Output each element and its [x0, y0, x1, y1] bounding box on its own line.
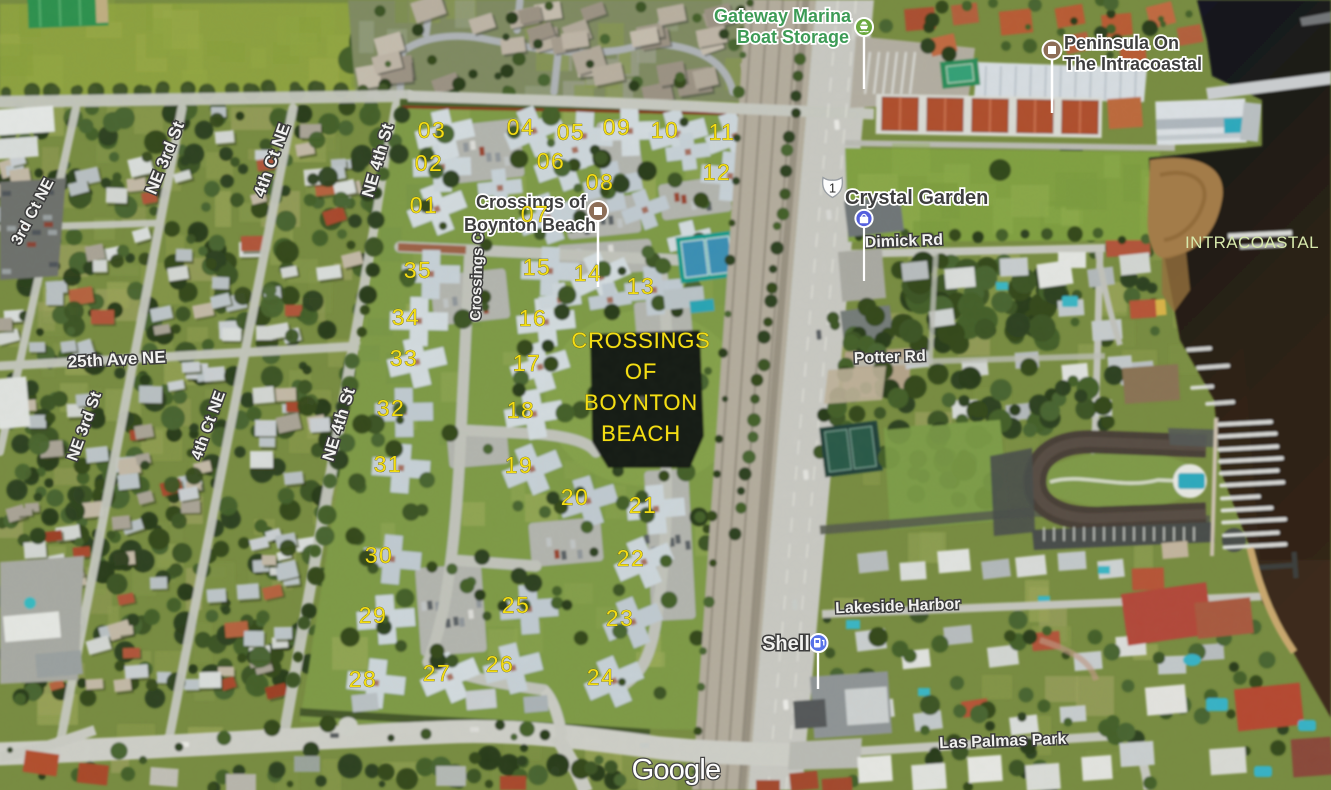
- svg-text:27: 27: [423, 660, 452, 686]
- svg-text:05: 05: [557, 119, 586, 145]
- svg-text:BEACH: BEACH: [601, 421, 681, 446]
- svg-text:03: 03: [418, 117, 447, 143]
- svg-text:08: 08: [586, 169, 615, 195]
- svg-text:23: 23: [606, 605, 635, 631]
- svg-text:Gateway Marina: Gateway Marina: [714, 6, 852, 26]
- svg-text:14: 14: [574, 260, 603, 286]
- svg-text:28: 28: [349, 666, 378, 692]
- svg-text:11: 11: [709, 119, 736, 145]
- svg-text:13: 13: [627, 273, 656, 299]
- svg-text:07: 07: [521, 201, 550, 227]
- svg-text:The Intracoastal: The Intracoastal: [1064, 54, 1202, 74]
- svg-text:INTRACOASTAL: INTRACOASTAL: [1185, 233, 1319, 252]
- svg-text:19: 19: [505, 452, 534, 478]
- svg-text:10: 10: [651, 117, 680, 143]
- svg-text:06: 06: [537, 148, 566, 174]
- svg-text:24: 24: [587, 664, 616, 690]
- svg-text:20: 20: [561, 484, 590, 510]
- svg-text:16: 16: [519, 305, 548, 331]
- svg-text:33: 33: [390, 345, 419, 371]
- svg-text:17: 17: [513, 350, 542, 376]
- svg-text:1: 1: [829, 181, 836, 196]
- svg-text:Potter Rd: Potter Rd: [854, 348, 927, 368]
- svg-text:21: 21: [629, 492, 658, 518]
- svg-text:25: 25: [502, 592, 531, 618]
- svg-text:Crystal Garden: Crystal Garden: [845, 187, 988, 209]
- svg-text:Boat Storage: Boat Storage: [737, 27, 849, 47]
- svg-text:26: 26: [486, 651, 515, 677]
- svg-text:BOYNTON: BOYNTON: [584, 390, 698, 415]
- svg-text:OF: OF: [625, 359, 657, 384]
- svg-text:18: 18: [507, 397, 536, 423]
- svg-text:Crossings Cir: Crossings Cir: [467, 222, 487, 321]
- svg-text:Peninsula On: Peninsula On: [1064, 33, 1179, 53]
- svg-text:01: 01: [410, 192, 439, 218]
- svg-text:31: 31: [374, 451, 403, 477]
- svg-text:29: 29: [359, 602, 388, 628]
- svg-text:CROSSINGS: CROSSINGS: [571, 328, 710, 353]
- svg-text:15: 15: [523, 254, 552, 280]
- svg-text:Shell: Shell: [762, 633, 810, 655]
- svg-text:34: 34: [392, 304, 421, 330]
- svg-text:22: 22: [617, 545, 646, 571]
- svg-text:04: 04: [507, 114, 536, 140]
- svg-text:Google: Google: [632, 754, 721, 786]
- svg-text:32: 32: [377, 395, 406, 421]
- svg-text:02: 02: [415, 150, 444, 176]
- svg-text:Dimick Rd: Dimick Rd: [864, 232, 943, 252]
- svg-text:30: 30: [365, 542, 394, 568]
- svg-text:35: 35: [404, 257, 433, 283]
- svg-text:12: 12: [703, 159, 732, 185]
- svg-text:09: 09: [603, 114, 632, 140]
